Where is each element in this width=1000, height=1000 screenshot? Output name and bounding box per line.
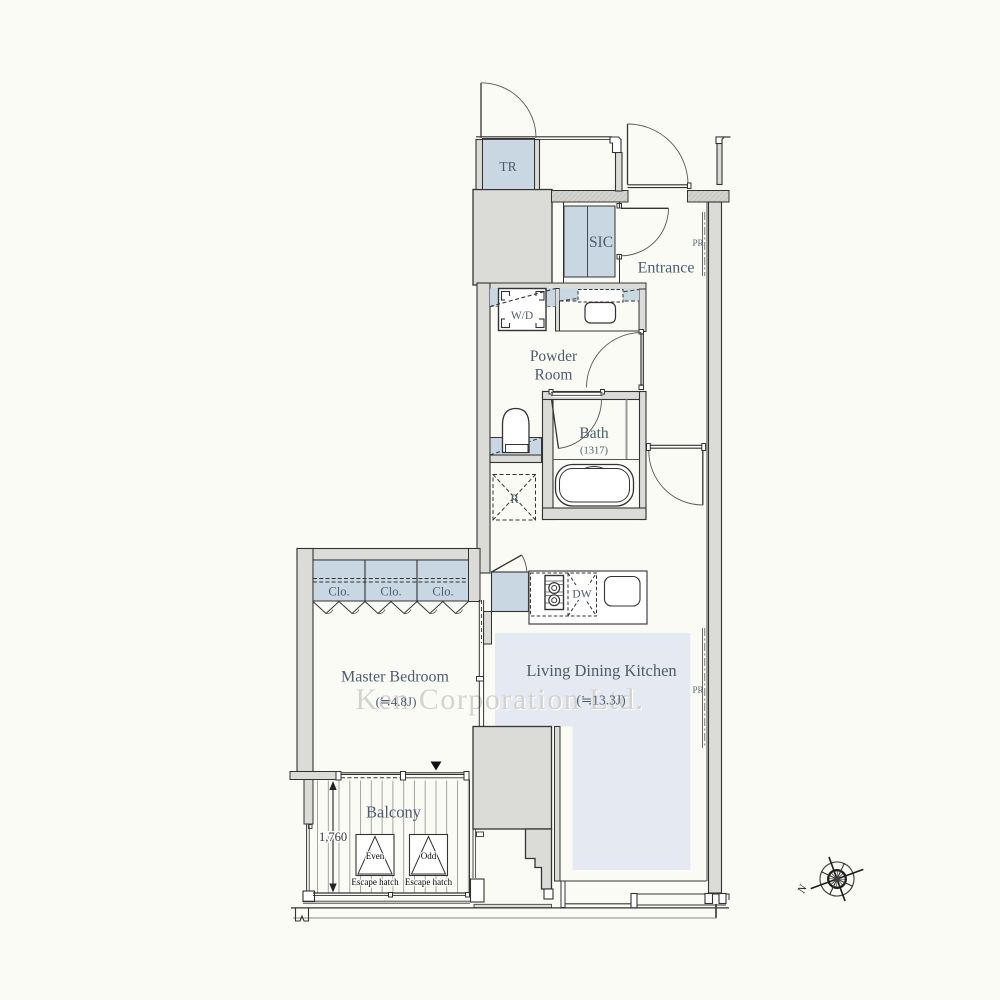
svg-text:Clo.: Clo. <box>432 585 453 599</box>
svg-text:Living Dining Kitchen: Living Dining Kitchen <box>526 661 676 680</box>
svg-text:Escape hatch: Escape hatch <box>351 877 399 887</box>
svg-text:Entrance: Entrance <box>638 260 695 277</box>
svg-text:TR: TR <box>499 159 516 174</box>
svg-text:Powder: Powder <box>530 348 578 365</box>
svg-text:(≒13.3J): (≒13.3J) <box>576 693 625 708</box>
svg-text:(1317): (1317) <box>580 446 608 457</box>
svg-text:Even: Even <box>366 851 385 861</box>
svg-text:R: R <box>510 492 519 506</box>
svg-text:Clo.: Clo. <box>328 585 349 599</box>
svg-text:Master Bedroom: Master Bedroom <box>341 669 450 686</box>
svg-text:W/D: W/D <box>511 310 533 322</box>
svg-text:Balcony: Balcony <box>366 803 422 822</box>
svg-text:SIC: SIC <box>589 234 613 251</box>
svg-text:Bath: Bath <box>579 425 609 442</box>
svg-text:Clo.: Clo. <box>380 585 401 599</box>
svg-text:Escape hatch: Escape hatch <box>405 877 453 887</box>
svg-text:1,760: 1,760 <box>319 830 347 844</box>
svg-text:Odd: Odd <box>421 851 437 861</box>
svg-text:Room: Room <box>535 367 573 384</box>
svg-text:PR: PR <box>692 238 703 248</box>
svg-text:PR: PR <box>692 685 703 695</box>
svg-text:DW: DW <box>572 589 591 601</box>
svg-text:(≒4.8J): (≒4.8J) <box>376 694 417 709</box>
